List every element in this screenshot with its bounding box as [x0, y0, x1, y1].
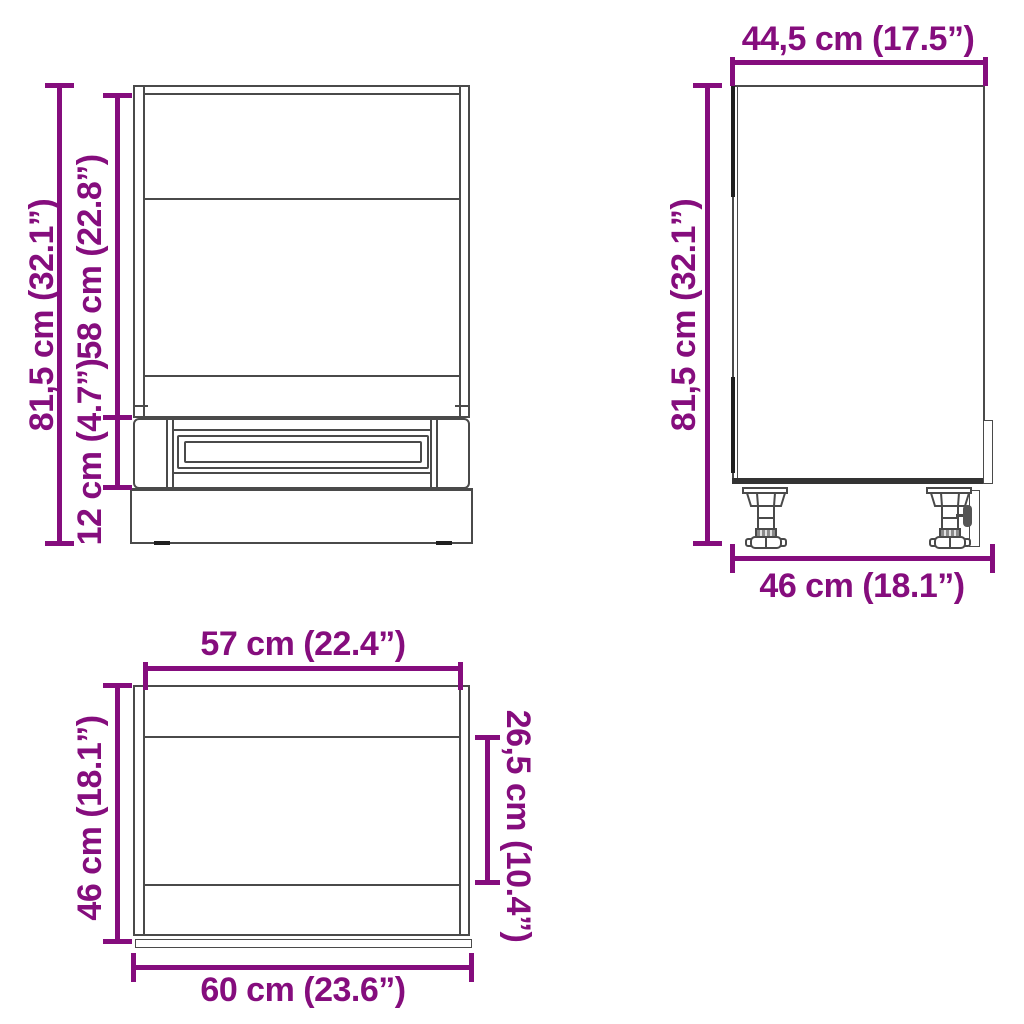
top-right-panel-line: [459, 685, 461, 936]
side-back-rail-upper: [983, 420, 993, 484]
side-front-panel-upper: [731, 86, 735, 197]
top-inner-width-dimension-line: [143, 666, 463, 671]
side-height-dimension-line: [705, 85, 710, 546]
top-outer-width-dimension-line: [133, 965, 473, 970]
front-top-rail-line: [143, 93, 461, 95]
top-inner-width-dimension-label: 57 cm (22.4”): [200, 627, 405, 661]
dimension-diagram: 81,5 cm (32.1”) 58 cm (22.8”) 12 cm (4.7…: [0, 0, 1024, 1024]
side-height-cap-top: [693, 83, 722, 88]
top-inner-depth-cap-bottom: [475, 880, 500, 885]
plinth-foot-left: [154, 541, 170, 545]
side-base-depth-cap-right: [990, 544, 995, 573]
side-top-depth-cap-left: [730, 57, 735, 86]
top-inner-width-cap-left: [143, 662, 148, 690]
side-base-depth-dimension-label: 46 cm (18.1”): [759, 569, 964, 603]
adjustable-foot-left: [742, 487, 790, 549]
drawer-frame-bottom-line: [172, 472, 432, 474]
foot-adjuster-knob: [963, 505, 972, 527]
front-section-cap-top: [103, 93, 132, 98]
side-front-panel-lower: [731, 377, 735, 473]
side-base-depth-cap-left: [730, 544, 735, 573]
side-front-edge-line: [737, 87, 738, 480]
top-inner-line-back: [144, 884, 460, 886]
drawer-frame-top-line: [172, 429, 432, 431]
top-outer-width-cap-left: [131, 953, 136, 982]
drawer-frame-left-line: [166, 420, 168, 487]
top-outer-width-dimension-label: 60 cm (23.6”): [200, 973, 405, 1007]
side-base-depth-dimension-line: [730, 556, 995, 561]
top-depth-dimension-line: [115, 685, 120, 944]
side-body: [732, 85, 985, 482]
plinth-foot-right: [436, 541, 452, 545]
side-bottom-panel: [732, 478, 985, 484]
side-top-depth-dimension-line: [730, 60, 988, 65]
front-plinth: [130, 488, 473, 544]
top-carcass: [133, 685, 470, 936]
front-right-stub-line: [455, 405, 470, 407]
top-depth-dimension-label: 46 cm (18.1”): [73, 715, 107, 920]
top-left-panel-line: [143, 685, 145, 936]
front-section-dimension-line: [115, 95, 120, 490]
side-height-dimension-label: 81,5 cm (32.1”): [667, 199, 701, 432]
front-carcass: [133, 85, 470, 418]
top-depth-cap-top: [103, 683, 132, 688]
top-inner-depth-cap-top: [475, 735, 500, 740]
top-inner-line-front: [144, 736, 460, 738]
front-total-height-cap-top: [45, 83, 74, 88]
front-drawer-height-dimension-label: 12 cm (4.7”): [73, 359, 107, 546]
front-right-panel-line: [459, 85, 461, 418]
side-top-depth-dimension-label: 44,5 cm (17.5”): [742, 22, 975, 56]
drawer-frame-right-line2: [436, 420, 438, 487]
side-height-cap-bottom: [693, 541, 722, 546]
front-left-panel-line: [143, 85, 145, 418]
top-inner-width-cap-right: [458, 662, 463, 690]
front-upper-divider-line: [143, 198, 461, 200]
front-total-height-dimension-label: 81,5 cm (32.1”): [25, 199, 59, 432]
front-left-stub-line: [133, 405, 148, 407]
top-outer-width-cap-right: [469, 953, 474, 982]
front-total-height-cap-bottom: [45, 541, 74, 546]
top-depth-cap-bottom: [103, 939, 132, 944]
side-top-depth-cap-right: [983, 57, 988, 86]
top-inner-depth-dimension-line: [485, 737, 490, 885]
top-inner-depth-dimension-label: 26,5 cm (10.4”): [501, 710, 535, 943]
drawer-front-inner: [184, 441, 422, 463]
front-upper-height-dimension-label: 58 cm (22.8”): [73, 154, 107, 359]
top-door-panel: [135, 939, 472, 948]
front-opening-bottom-line: [143, 375, 461, 377]
